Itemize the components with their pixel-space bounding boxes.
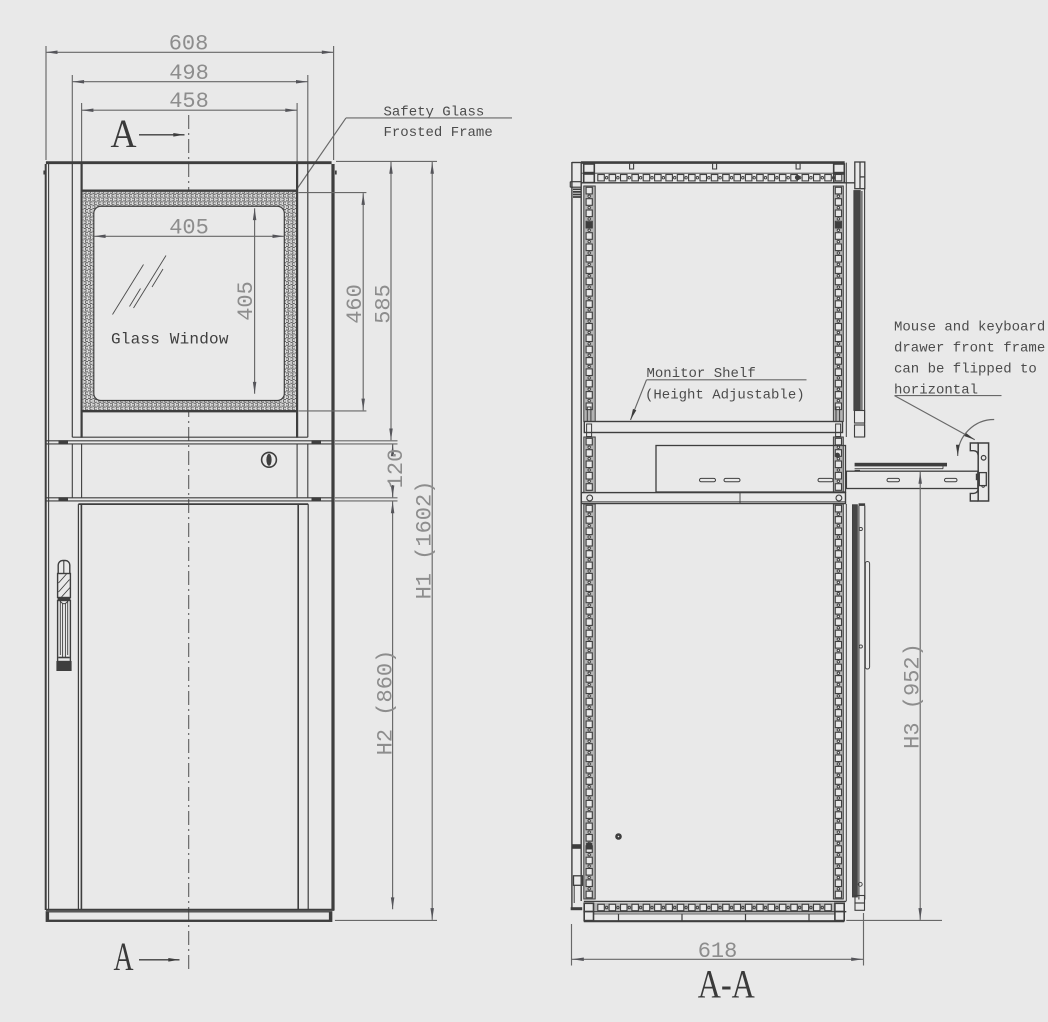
svg-text:405: 405 xyxy=(169,215,209,240)
svg-text:460: 460 xyxy=(343,284,368,324)
svg-text:498: 498 xyxy=(169,61,209,86)
svg-text:585: 585 xyxy=(372,284,397,324)
svg-text:405: 405 xyxy=(234,281,259,321)
svg-text:458: 458 xyxy=(169,89,209,114)
svg-text:(Height Adjustable): (Height Adjustable) xyxy=(645,388,805,404)
svg-text:Mouse and keyboard: Mouse and keyboard xyxy=(894,320,1045,336)
svg-text:Glass Window: Glass Window xyxy=(111,331,229,349)
svg-text:H2 (860): H2 (860) xyxy=(374,650,399,756)
svg-text:can be flipped to: can be flipped to xyxy=(894,362,1037,378)
svg-text:drawer front frame: drawer front frame xyxy=(894,341,1045,357)
svg-text:H1 (1602): H1 (1602) xyxy=(413,481,438,600)
svg-text:608: 608 xyxy=(169,31,209,56)
svg-text:A-A: A-A xyxy=(698,962,755,1007)
svg-text:120: 120 xyxy=(384,449,409,489)
svg-text:A: A xyxy=(114,934,134,979)
svg-text:618: 618 xyxy=(698,939,738,964)
svg-text:H3 (952): H3 (952) xyxy=(901,643,926,749)
svg-text:A: A xyxy=(111,111,137,156)
svg-text:Frosted Frame: Frosted Frame xyxy=(384,125,493,141)
